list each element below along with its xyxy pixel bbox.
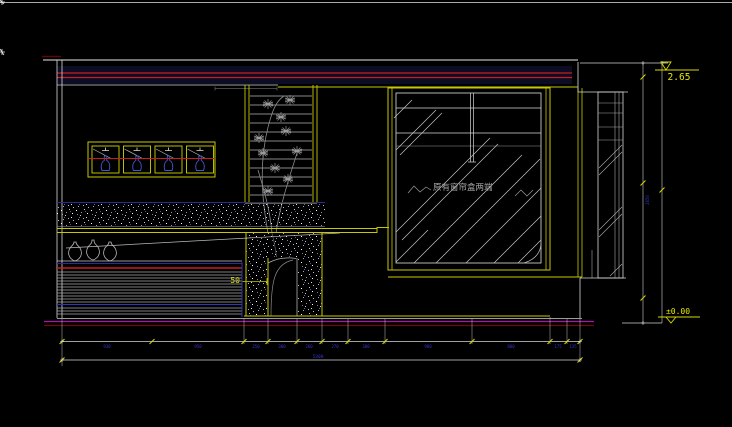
right-wall-section — [578, 62, 628, 318]
svg-text:300: 300 — [278, 344, 286, 349]
leader-squiggle-icon — [515, 190, 533, 196]
image-border — [0, 0, 732, 57]
bottom-dimensions: 930 950 250 300 260 270 380 900 800 175 … — [60, 317, 583, 366]
svg-text:175: 175 — [554, 344, 562, 349]
svg-text:135: 135 — [569, 344, 577, 349]
level-triangle-icon — [666, 317, 676, 323]
level-label-top: 2.65 — [668, 72, 691, 83]
dimension-end-crosses — [641, 61, 664, 325]
corner-mark-icon — [0, 0, 5, 55]
svg-text:950: 950 — [194, 344, 202, 349]
level-marker-floor: ±0.00 — [658, 307, 700, 323]
dimension-total-label: 5300 — [313, 354, 324, 360]
column-opening — [267, 257, 298, 316]
cad-elevation-drawing: 50 — [0, 0, 732, 427]
countertop-edge — [57, 227, 389, 233]
vertical-dimension-label: 2650 — [645, 195, 650, 205]
svg-text:270: 270 — [331, 344, 339, 349]
drawing-surface: 50 — [0, 0, 732, 427]
svg-text:260: 260 — [305, 344, 313, 349]
stone-hatch-band — [57, 203, 325, 227]
dimension-labels-row1: 930 950 250 300 260 270 380 900 800 175 … — [103, 344, 577, 349]
level-marker-top: 2.65 — [655, 62, 699, 83]
window-mullion — [468, 93, 476, 162]
svg-text:930: 930 — [103, 344, 111, 349]
louver-slats — [250, 96, 312, 195]
stone-column — [246, 233, 322, 316]
left-wall-lines — [57, 60, 62, 318]
ceiling-and-curtain-rail — [43, 60, 578, 91]
svg-text:380: 380 — [362, 344, 370, 349]
vase-display-niche — [88, 142, 215, 177]
floor-lines — [44, 316, 594, 326]
niche-shelf-diagonals — [93, 149, 207, 159]
svg-text:800: 800 — [507, 344, 515, 349]
glass-note-text: 原有窗帘盒两端 — [433, 182, 493, 193]
svg-text:900: 900 — [424, 344, 432, 349]
svg-text:250: 250 — [252, 344, 260, 349]
level-label-floor: ±0.00 — [666, 307, 690, 316]
glass-window-panel: 原有窗帘盒两端 — [388, 88, 582, 277]
hook-icon — [102, 148, 204, 151]
bottle-icon — [69, 240, 117, 261]
glass-note: 原有窗帘盒两端 — [408, 182, 533, 196]
leader-squiggle-icon — [408, 186, 431, 193]
dimension-ticks — [641, 75, 665, 301]
glass-reflection-lines — [394, 100, 541, 263]
bar-louver-front — [57, 262, 242, 317]
